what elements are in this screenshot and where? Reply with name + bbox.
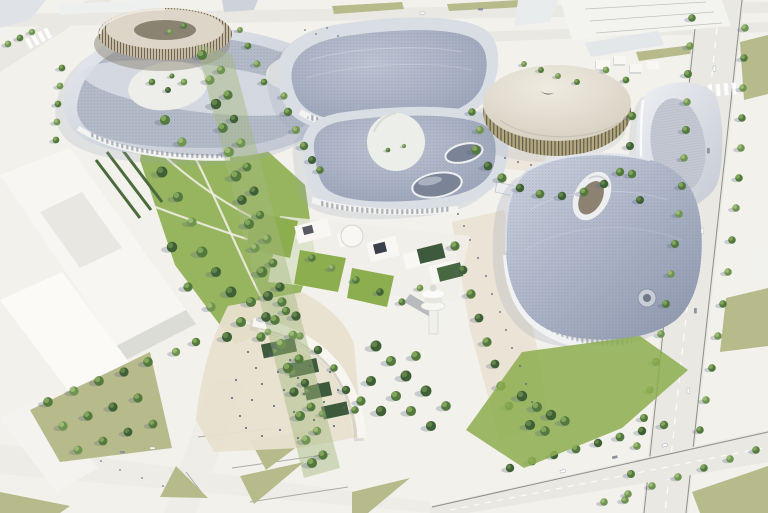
round-canopy xyxy=(341,225,363,247)
roof-vent xyxy=(638,289,656,307)
roof-oculus xyxy=(367,113,425,171)
main-squircle-arena xyxy=(493,154,702,349)
aerial-rendering xyxy=(0,0,768,513)
